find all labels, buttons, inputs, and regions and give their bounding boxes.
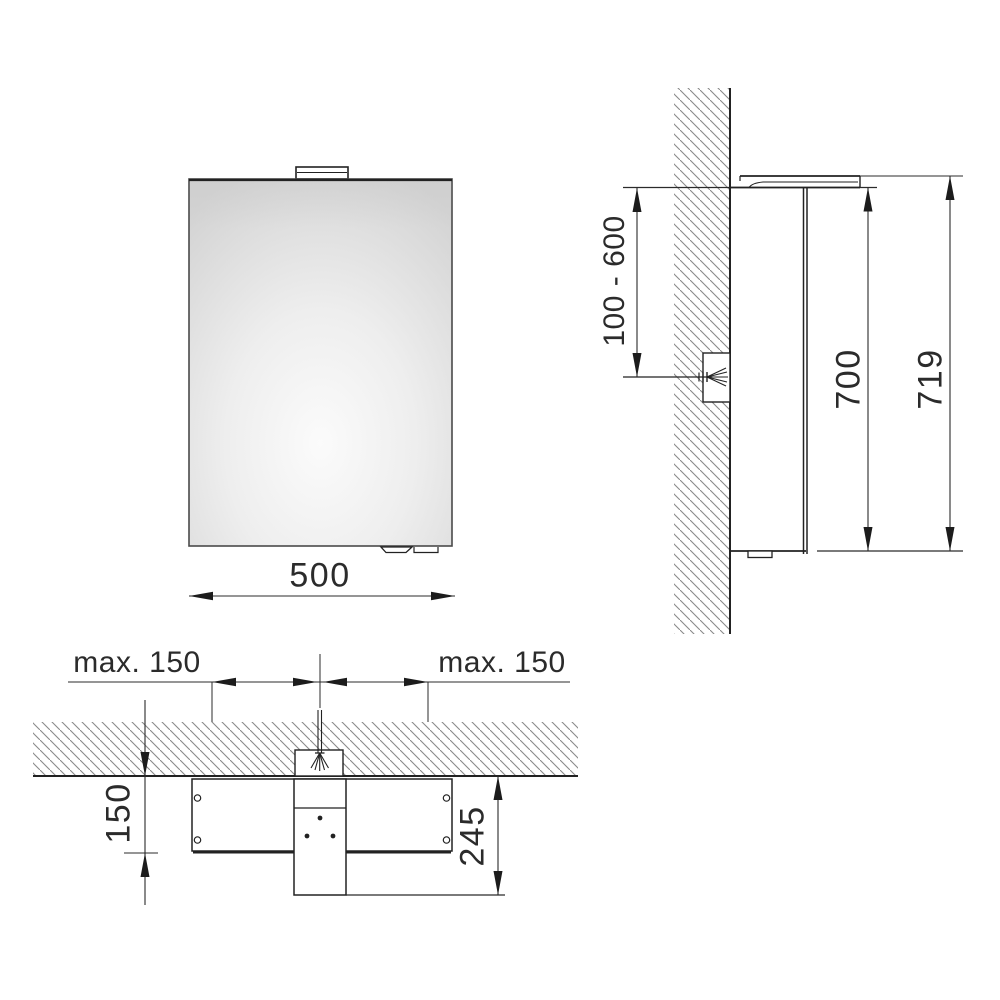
bottom-recess-front (414, 547, 438, 553)
dim-arrow (293, 678, 317, 686)
dim-arrow (212, 678, 236, 686)
dim-label-mount-range: 100 - 600 (598, 215, 632, 346)
bottom-switch-front (381, 547, 412, 553)
dim-label-offset-left: max. 150 (73, 646, 200, 680)
light-fixture-side (740, 176, 860, 188)
mounting-hole (443, 837, 449, 843)
dim-arrow (946, 527, 955, 551)
mounting-hole (443, 795, 449, 801)
dim-label-offset-right: max. 150 (438, 646, 565, 680)
mounting-hole (194, 795, 200, 801)
bottom-switch-side (748, 551, 772, 558)
dim-arrow (633, 188, 642, 212)
mirror-top-shade (190, 180, 451, 300)
dim-label-total-height: 719 (912, 348, 951, 409)
dim-label-depth: 150 (100, 782, 139, 843)
dim-arrow (404, 678, 428, 686)
screw-dot (305, 834, 310, 839)
drawing-linework (0, 0, 1000, 1000)
dim-arrow (323, 678, 347, 686)
screw-dot (331, 834, 336, 839)
technical-drawing-canvas: 500 100 - 600 700 719 max. 150 max. 150 … (0, 0, 1000, 1000)
dim-label-front-width: 500 (289, 557, 350, 596)
dim-arrow (494, 776, 503, 800)
top-view (33, 654, 578, 905)
dim-arrow (141, 853, 150, 877)
dim-arrow (189, 592, 213, 600)
dim-arrow (431, 592, 455, 600)
lamp-housing-top (294, 779, 346, 895)
dim-label-cabinet-height: 700 (830, 348, 869, 409)
dim-arrow (494, 871, 503, 895)
dim-arrow (633, 353, 642, 377)
front-view (189, 167, 455, 600)
dim-arrow (864, 188, 873, 212)
mounting-hole (194, 837, 200, 843)
dim-label-total-depth: 245 (454, 805, 493, 866)
dim-arrow (946, 176, 955, 200)
dim-arrow (864, 527, 873, 551)
screw-dot (318, 816, 323, 821)
